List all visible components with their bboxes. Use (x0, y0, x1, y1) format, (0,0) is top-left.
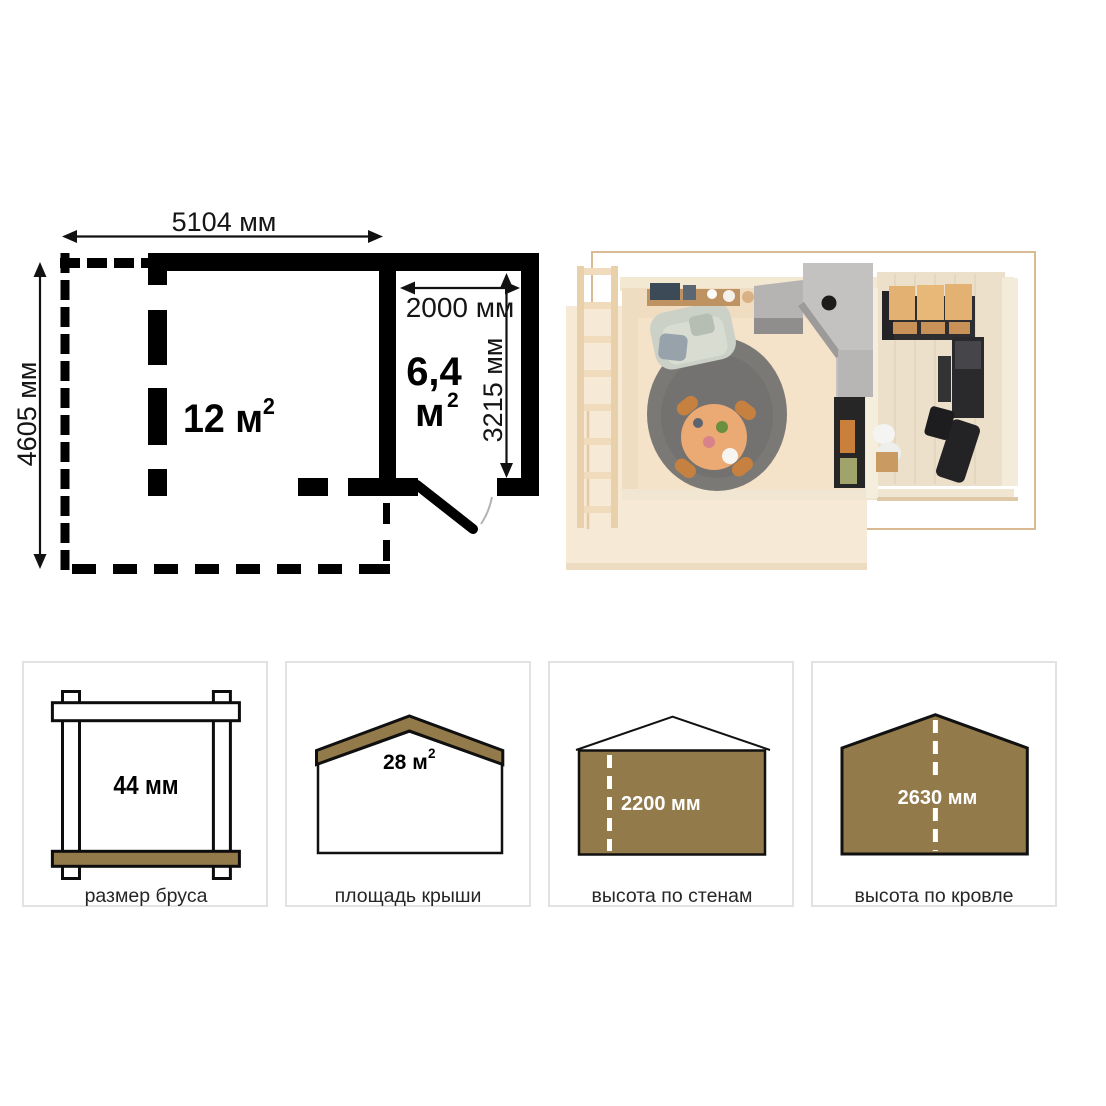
svg-text:6,4: 6,4 (406, 350, 462, 394)
svg-text:высота по кровле: высота по кровле (855, 885, 1014, 907)
svg-text:5104 мм: 5104 мм (172, 207, 277, 237)
svg-text:2200 мм: 2200 мм (621, 793, 701, 815)
svg-text:2630 мм: 2630 мм (898, 787, 978, 809)
svg-text:м: м (415, 391, 445, 435)
svg-text:4605 мм: 4605 мм (12, 362, 42, 467)
svg-text:12 м: 12 м (183, 397, 263, 441)
svg-text:площадь крыши: площадь крыши (335, 885, 482, 907)
svg-text:2: 2 (428, 746, 436, 761)
svg-text:28 м: 28 м (383, 751, 428, 774)
svg-text:3215 мм: 3215 мм (478, 338, 508, 443)
svg-text:2: 2 (263, 393, 275, 419)
svg-text:2000 мм: 2000 мм (406, 292, 515, 323)
svg-text:2: 2 (447, 389, 459, 412)
svg-text:44 мм: 44 мм (113, 772, 178, 801)
svg-text:высота по стенам: высота по стенам (592, 885, 753, 907)
svg-text:размер бруса: размер бруса (85, 885, 208, 907)
